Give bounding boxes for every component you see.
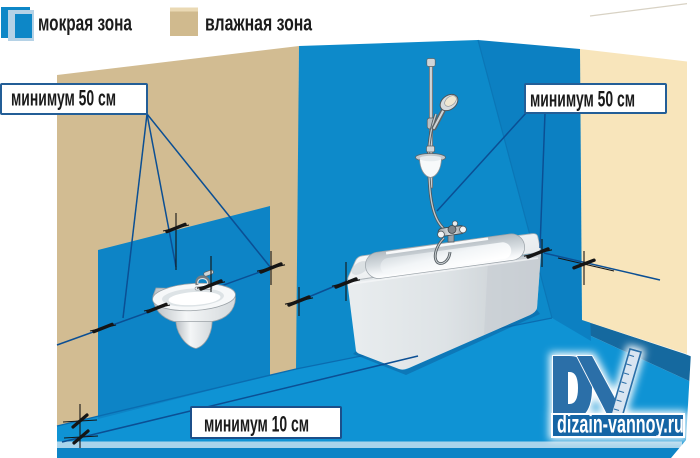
svg-text:dizain-vannoy.ru: dizain-vannoy.ru [557, 408, 684, 438]
svg-text:мокрая зона: мокрая зона [38, 12, 132, 36]
svg-text:минимум 50 см: минимум 50 см [11, 85, 116, 110]
svg-text:минимум 10 см: минимум 10 см [204, 411, 309, 436]
svg-text:минимум 50 см: минимум 50 см [530, 86, 635, 111]
svg-text:влажная зона: влажная зона [205, 12, 312, 36]
